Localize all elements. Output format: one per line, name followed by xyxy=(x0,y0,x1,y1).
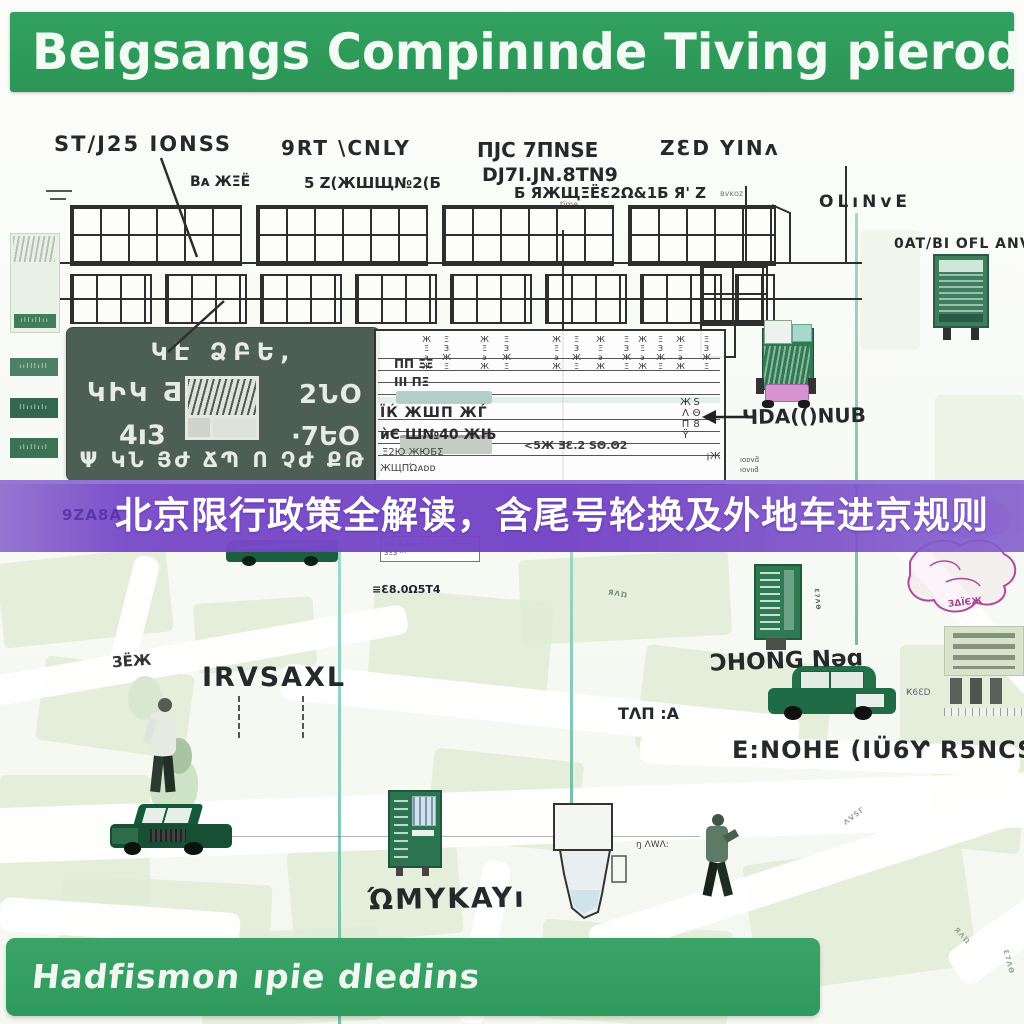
table-col-glyphs: ΞЗЖΞ xyxy=(656,335,665,389)
sign-plate-box xyxy=(185,376,259,440)
sketch-vline xyxy=(745,186,747,264)
building-base xyxy=(944,708,1024,716)
grid-caption-small: ʙᴠᴋᴏᴢ xyxy=(720,189,743,198)
table-bottom-label: ЖЩΠΏᴀᴅᴅ xyxy=(380,463,436,474)
road-sign-board: ԿԷ ՁԲԵ, ԿԻԿ Ƌ· 4ı3 2ՆO ·7ԵO Ψ ԿՆ ՅԺ ՃՊ Ո… xyxy=(66,327,380,481)
small-sign-icon xyxy=(388,790,442,876)
calendar-grid-band xyxy=(442,205,614,266)
sketch-guide-line xyxy=(232,836,700,837)
calendar-grid-band xyxy=(70,205,242,266)
sign-text-bottom: Ψ ԿՆ ՅԺ ՃՊ Ո ՉԺ ՔԹ xyxy=(67,448,379,472)
strip-badge-text: ıllıllıı xyxy=(20,317,49,324)
strip-badge-text: ılıllııl xyxy=(19,444,48,451)
small-sign-bar xyxy=(412,830,434,836)
sign-text-left2: 4ı3 xyxy=(119,420,166,451)
annotation-irisaxl: IRVSAXL xyxy=(202,662,346,693)
strip-badge: ıılllıll xyxy=(10,358,58,376)
table-col-glyphs: ΞЗЖΞ xyxy=(442,335,451,389)
building-bar xyxy=(970,678,982,704)
annotation-wkay: ΏMYKAYı xyxy=(368,881,526,917)
billboard-icon xyxy=(933,254,989,340)
billboard-leg xyxy=(971,328,979,340)
suv-icon xyxy=(768,666,898,722)
suv-wheel xyxy=(854,706,872,720)
dashed-tick xyxy=(302,696,304,738)
grid-caption: Bᴀ ЖΞЁ xyxy=(190,174,250,190)
table-side-note: ıᴏᴅᴠƌ xyxy=(740,456,759,464)
person-head xyxy=(712,814,724,826)
annotation-djg: ПJС 7ΠNSE xyxy=(477,138,598,162)
annotation-stj: ST/J25 IONSS xyxy=(54,132,232,156)
teal-divider-line xyxy=(570,548,573,812)
person-leg xyxy=(716,861,733,896)
table-col-glyphs: ЖΞ϶Ж xyxy=(638,335,647,389)
banner-watermark: 9ZA8A xyxy=(62,506,122,524)
table-row-label: ѝЄ Ш№40 ЖЊ xyxy=(380,427,496,443)
car-wheel xyxy=(304,556,318,566)
annotation-fuel: ≡Ɛ8.0Ω5T4 xyxy=(372,583,441,596)
table-col-glyphs: ΞЗЖΞ xyxy=(502,335,511,389)
sedan-grill xyxy=(150,829,186,842)
billboard-noise xyxy=(939,274,983,312)
grid-caption: 5 Z(ЖШЩ№2(Б xyxy=(304,174,441,192)
billboard-leg xyxy=(943,328,951,340)
person-torso xyxy=(706,826,728,862)
annotation-oatbl: 0AT/BΙ OFL ANV xyxy=(894,236,1024,252)
table-col-glyphs: ΞЗЖΞ xyxy=(572,335,581,389)
sedan-window xyxy=(142,808,192,823)
teal-divider-line xyxy=(855,213,858,645)
schedule-table: ЖΞ϶Ж ΞЗЖΞ ЖΞ϶Ж ΞЗЖΞ ЖΞ϶Ж ΞЗЖΞ ЖΞ϶Ж ΞЗЖΞ … xyxy=(374,329,726,485)
sign-plate-cell xyxy=(188,418,210,437)
truck-mirror xyxy=(808,378,816,394)
banner-title: 北京限行政策全解读，含尾号轮换及外地车进京规则 xyxy=(115,484,989,548)
small-sign-scribble xyxy=(394,798,408,858)
infographic-poster: ΛVSΓ ЯΛΏ Ɛ7ΛΘ ΞΘΪ ЯΛΏ Ɛ7ΛΘ Beigsangs Com… xyxy=(0,0,1024,1024)
billboard-dark-row xyxy=(939,314,983,322)
grid-caption: Б ЯЖЩΞЁ xyxy=(514,184,600,202)
person-leg xyxy=(150,756,164,793)
table-note: <5Ж ƎƐ.2 ЅΘ.Θ2 xyxy=(524,439,627,452)
footer-banner: Hadfismon ıpie dledins xyxy=(6,938,820,1016)
small-sign-window xyxy=(412,796,436,826)
header-title: Beigsangs Compinınde Tiving pierodirs, xyxy=(32,12,1024,92)
person-leg xyxy=(162,756,175,793)
tall-sign-icon xyxy=(754,564,802,650)
calendar-grid-band xyxy=(628,205,776,266)
table-teal-strip xyxy=(378,397,720,403)
pedestrian-icon xyxy=(144,694,188,798)
tall-sign-strip xyxy=(784,570,794,630)
table-col-glyphs: ΞЗЖΞ xyxy=(622,335,631,389)
sketch-dash xyxy=(46,190,72,192)
sketch-dash xyxy=(50,198,66,200)
annotation-zed: ZƐD YINᴧ xyxy=(660,136,780,160)
table-col-glyphs: ЖΞ϶Ж xyxy=(552,335,561,389)
sign-text-right1: 2ՆO xyxy=(299,380,364,410)
annotation-glyphs: ЗЁЖ xyxy=(111,651,151,672)
strip-badge: ıllıllıı xyxy=(14,314,56,328)
small-sign-leg xyxy=(422,866,429,876)
table-row-label: ЇЌ ЖШΠ ЖЃ xyxy=(380,405,488,421)
truck-window xyxy=(792,324,812,342)
sign-plate-scribble xyxy=(188,379,256,415)
sign-plate-row xyxy=(188,415,256,437)
table-bottom-right: ¡Ж xyxy=(706,451,721,462)
strip-badge-text: ıılllıll xyxy=(19,363,48,370)
dashed-tick xyxy=(238,696,240,738)
sedan-icon xyxy=(110,802,234,858)
car-wheel xyxy=(242,556,256,566)
table-left-label: ΠΠ ΞΞ xyxy=(394,357,433,371)
strip-badge: ılıllııl xyxy=(10,438,58,458)
sign-text-left1: ԿԻԿ Ƌ· xyxy=(87,378,198,408)
annotation-chong: ƆHONG Nǝɑ xyxy=(710,645,864,676)
sedan-wheel xyxy=(124,842,141,855)
left-strip-panel: ıllıllıı xyxy=(10,233,60,333)
strip-badge: llıılılı xyxy=(10,398,58,418)
annotation-oline: OLıNᴠE xyxy=(819,192,911,212)
table-col-glyphs: ЖΞ϶Ж xyxy=(676,335,685,389)
small-sign-leg xyxy=(396,866,403,876)
suv-plate xyxy=(856,694,884,707)
building-bar xyxy=(990,678,1002,704)
tall-sign-face xyxy=(754,564,802,640)
annotation-srt: 9RT \CNLY xyxy=(281,136,411,160)
table-side-note: ıoᴠııƌ xyxy=(740,466,759,474)
billboard-strip xyxy=(939,260,983,272)
table-col-glyphs: ΞЗЖΞ xyxy=(702,335,711,389)
annotation-awa: ŋ ΛWΛ: xyxy=(636,840,669,850)
truck-body-noise xyxy=(764,346,810,386)
pedestrian-icon xyxy=(700,812,740,904)
annotation-k6d: Ҝ6ƐD xyxy=(906,688,931,698)
truck-cab xyxy=(764,320,792,344)
table-row-label: Ξ2Ю ЖЮБΣ xyxy=(382,447,443,458)
sketch-vline xyxy=(845,166,847,262)
annotation-taj: TΛΠ :A xyxy=(618,704,679,723)
table-col-glyphs: ЖΞ϶Ж xyxy=(480,335,489,389)
building-bar xyxy=(950,678,962,704)
suv-wheel xyxy=(784,706,802,720)
truck-icon xyxy=(756,318,816,410)
building-stripes xyxy=(953,633,1015,669)
grid-caption: Ɛ2Ω&1Б Я' Z xyxy=(600,184,706,202)
green-building-block xyxy=(944,626,1024,718)
annotation-dj7: DJ7I.JN.8TN9 xyxy=(482,164,618,186)
sign-text-top: ԿԷ ՁԲԵ, xyxy=(67,338,379,366)
calendar-grid-band xyxy=(256,205,428,266)
street-label: Ɛ7ΛΘ xyxy=(813,588,822,611)
tall-sign-scribble xyxy=(760,570,780,630)
billboard-face xyxy=(933,254,989,328)
small-sign-face xyxy=(388,790,442,868)
building-top xyxy=(944,626,1024,676)
table-right-col: ЅΘ8 ЖΛΠΫ xyxy=(680,397,702,457)
policy-banner: 9ZA8A 北京限行政策全解读，含尾号轮换及外地车进京规则 xyxy=(0,480,1024,552)
annotation-dmc: ЧDA(()NUB xyxy=(742,403,866,429)
strip-sketch xyxy=(13,236,55,262)
sign-plate-cell xyxy=(213,418,256,437)
table-left-label: ΙΙΙ ΠΞ xyxy=(394,375,429,389)
annotation-enohe: E:NOHE (IÜ6Ƴ R5NCS xyxy=(732,736,1024,764)
sedan-wheel xyxy=(184,842,203,855)
truck-mirror xyxy=(756,378,764,394)
header-banner: Beigsangs Compinınde Tiving pierodirs, xyxy=(10,12,1014,92)
calendar-grid-piece xyxy=(700,264,768,326)
table-col-glyphs: ЖΞ϶Ж xyxy=(596,335,605,389)
footer-title: Hadfismon ıpie dledins xyxy=(28,938,485,1016)
strip-badge-text: llıılılı xyxy=(19,404,48,411)
person-head xyxy=(158,698,172,712)
